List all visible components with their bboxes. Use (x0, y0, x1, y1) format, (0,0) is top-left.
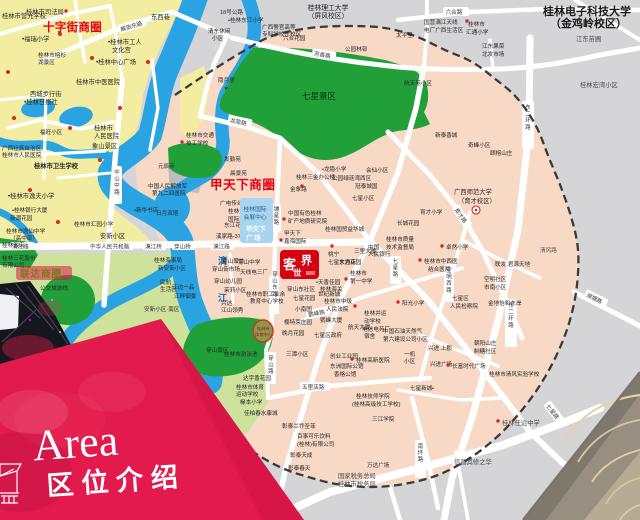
svg-text:达宇香花园: 达宇香花园 (243, 374, 271, 382)
svg-text:元辰寺: 元辰寺 (158, 162, 175, 170)
svg-text:•龙隐小学: •龙隐小学 (322, 165, 347, 173)
svg-text:航天苑小区: 航天苑小区 (404, 79, 432, 87)
svg-text:技工学校: 技工学校 (186, 139, 209, 147)
svg-text:桂林市: 桂林市 (350, 269, 367, 277)
svg-text:七星花园: 七星花园 (293, 294, 316, 302)
svg-text:中国石油天然气: 中国石油天然气 (383, 327, 423, 335)
svg-text:制糖社区: 制糖社区 (474, 347, 497, 355)
svg-text:二: 二 (508, 310, 514, 316)
svg-text:桂林市中医医院: 桂林市中医医院 (76, 77, 121, 86)
svg-text:•: • (432, 386, 434, 392)
svg-text:冠泰城国: 冠泰城国 (355, 182, 378, 190)
svg-text:清风路: 清风路 (540, 246, 557, 254)
svg-text:人民检察院: 人民检察院 (450, 302, 478, 310)
svg-text:西城步行街: 西城步行街 (30, 89, 62, 98)
svg-text:甲天下: 甲天下 (246, 225, 266, 233)
svg-text:江东苗圃: 江东苗圃 (576, 34, 601, 43)
svg-text:奇峰小区: 奇峰小区 (468, 141, 491, 149)
svg-text:鹦峰大厦: 鹦峰大厦 (320, 316, 343, 324)
svg-text:结合医院: 结合医院 (428, 265, 451, 273)
svg-text:七星区政府: 七星区政府 (314, 331, 342, 339)
svg-text:穿: 穿 (268, 354, 273, 362)
svg-text:桂林饭店: 桂林饭店 (2, 241, 25, 249)
svg-text:桂林市: 桂林市 (94, 123, 113, 132)
svg-text:穿山幼儿园: 穿山幼儿园 (214, 277, 242, 285)
svg-text:甲天下商圈: 甲天下商圈 (210, 177, 276, 192)
svg-text:路: 路 (446, 286, 452, 294)
svg-text:七星小区: 七星小区 (352, 194, 375, 202)
svg-text:香格公馆: 香格公馆 (334, 370, 357, 378)
svg-text:路: 路 (274, 218, 280, 226)
svg-text:七星新城: 七星新城 (410, 384, 433, 392)
svg-text:文化宫: 文化宫 (112, 45, 131, 54)
svg-text:五里店路: 五里店路 (302, 383, 325, 391)
svg-text:小区: 小区 (404, 357, 416, 365)
svg-text:桂林市: 桂林市 (468, 20, 485, 28)
svg-text:动学校: 动学校 (364, 317, 381, 325)
svg-text:万达广场: 万达广场 (367, 461, 390, 469)
svg-text:中国人民解放军: 中国人民解放军 (148, 182, 188, 190)
svg-text:桂林并运: 桂林并运 (364, 309, 387, 317)
svg-text:汇通小学: 汇通小学 (466, 28, 489, 36)
svg-text:颐榕山庄: 颐榕山庄 (490, 149, 513, 157)
svg-text:穿山街市场: 穿山街市场 (212, 265, 240, 273)
svg-text:空明社区: 空明社区 (484, 275, 507, 283)
svg-text:长城花园: 长城花园 (397, 219, 420, 227)
svg-text:六合花园: 六合花园 (283, 34, 306, 42)
svg-text:环: 环 (508, 315, 514, 322)
svg-text:信昌其修之华: 信昌其修之华 (454, 457, 492, 466)
svg-text:•桂林市逸夫小学: •桂林市逸夫小学 (8, 191, 54, 200)
svg-text:桂林市营光学校: 桂林市营光学校 (2, 11, 47, 20)
svg-text:桂林市中西医: 桂林市中西医 (424, 257, 458, 265)
svg-text:民航: 民航 (160, 278, 172, 286)
svg-text:鑫海国际: 鑫海国际 (284, 237, 307, 245)
svg-text:桂林市税务局: 桂林市税务局 (338, 479, 376, 488)
svg-text:七星景区: 七星景区 (302, 91, 337, 101)
svg-text:隐月居: 隐月居 (218, 76, 235, 84)
svg-text:山: 山 (114, 175, 119, 183)
svg-text:山: 山 (268, 361, 273, 369)
svg-text:人民法院: 人民法院 (326, 305, 349, 313)
svg-text:清东休闲: 清东休闲 (208, 27, 231, 35)
svg-text:山: 山 (272, 277, 277, 285)
svg-text:桂林市逸仙中学: 桂林市逸仙中学 (6, 227, 46, 235)
svg-text:（育才校区）: （育才校区） (458, 196, 496, 205)
svg-text:安新小区·南区: 安新小区·南区 (144, 305, 180, 313)
svg-text:桂林市卫生学校: 桂林市卫生学校 (33, 161, 79, 170)
svg-text:明: 明 (446, 274, 451, 281)
svg-text:（金鸡岭校区）: （金鸡岭校区） (550, 16, 627, 30)
svg-text:星: 星 (274, 213, 280, 220)
svg-text:路: 路 (525, 123, 531, 131)
svg-text:安新小区: 安新小区 (100, 231, 125, 240)
svg-text:世纪新城: 世纪新城 (318, 290, 341, 298)
svg-text:环: 环 (418, 450, 424, 457)
svg-text:路: 路 (508, 321, 514, 329)
svg-text:中国有色桂林: 中国有色桂林 (288, 209, 322, 217)
svg-text:桂林市体育: 桂林市体育 (236, 383, 264, 391)
svg-text:桂林市人民医院: 桂林市人民医院 (2, 151, 42, 159)
svg-text:有限公司: 有限公司 (2, 261, 24, 269)
svg-text:联达商圈: 联达商圈 (20, 268, 62, 280)
svg-text:(桂林高级技工学校): (桂林高级技工学校) (352, 400, 401, 408)
svg-text:•桂林中心广场: •桂林中心广场 (96, 57, 136, 66)
svg-text:三江学院: 三江学院 (372, 415, 395, 423)
svg-text:穿: 穿 (272, 270, 277, 278)
svg-text:兴达: 兴达 (221, 299, 233, 307)
svg-text:界: 界 (301, 254, 312, 267)
svg-text:路: 路 (393, 270, 399, 278)
svg-text:桂林市职工业余: 桂林市职工业余 (246, 290, 286, 298)
svg-text:兴进.上郡: 兴进.上郡 (428, 344, 452, 352)
svg-text:桂林电子科技大学: 桂林电子科技大学 (542, 4, 631, 18)
svg-text:湖景区: 湖景区 (38, 58, 55, 66)
svg-text:日月双塔: 日月双塔 (156, 209, 179, 217)
svg-text:阳光小学: 阳光小学 (402, 299, 425, 307)
svg-text:新潮花园: 新潮花园 (10, 214, 33, 222)
svg-text:桂林市中级: 桂林市中级 (324, 297, 352, 305)
svg-text:第九二四医院: 第九二四医院 (152, 189, 186, 197)
svg-text:联发.君源天地: 联发.君源天地 (495, 260, 531, 268)
svg-text:西: 西 (446, 280, 452, 287)
svg-text:第六建设公司小区: 第六建设公司小区 (383, 335, 428, 343)
svg-text:公园林邨: 公园林邨 (345, 45, 368, 53)
svg-text:漓江桥: 漓江桥 (145, 243, 162, 251)
svg-text:七星区: 七星区 (452, 294, 469, 302)
svg-text:中: 中 (114, 168, 119, 176)
svg-text:•福瑞小学: •福瑞小学 (22, 34, 49, 43)
svg-text:七: 七 (393, 257, 399, 265)
svg-text:桂林理工大学: 桂林理工大学 (308, 3, 349, 12)
svg-text:路: 路 (418, 455, 424, 463)
svg-text:技术监督局: 技术监督局 (386, 243, 414, 251)
svg-text:•桂林日报社: •桂林日报社 (24, 97, 58, 106)
svg-text:桂林任远中学: 桂林任远中学 (502, 418, 540, 427)
svg-text:公交旅游线: 公交旅游线 (40, 284, 68, 292)
svg-text:晚月花园: 晚月花园 (282, 329, 305, 337)
svg-text:人民医院: 人民医院 (94, 131, 120, 140)
svg-text:桂林国贸益华城: 桂林国贸益华城 (325, 225, 365, 233)
svg-text:桂林海事局: 桂林海事局 (154, 256, 182, 264)
svg-text:金象路: 金象路 (290, 185, 307, 193)
svg-text:七星大酒店: 七星大酒店 (328, 258, 356, 266)
svg-text:•桂林市工人: •桂林市工人 (108, 37, 142, 46)
svg-text:国营漓江天线: 国营漓江天线 (424, 18, 458, 26)
svg-text:Area: Area (31, 416, 120, 471)
svg-text:北发市场: 北发市场 (482, 50, 505, 58)
svg-text:桂林市游泳池: 桂林市游泳池 (224, 350, 258, 358)
svg-text:•桂林银行大厦: •桂林银行大厦 (12, 206, 48, 214)
svg-text:育才小学: 育才小学 (420, 208, 443, 216)
svg-text:江东果菜: 江东果菜 (482, 42, 505, 50)
svg-text:桂林宏湾小区: 桂林宏湾小区 (580, 80, 618, 89)
svg-text:小南国: 小南国 (295, 305, 312, 313)
svg-text:会展中心: 会展中心 (244, 213, 267, 221)
svg-text:•桂林东江小学: •桂林东江小学 (228, 16, 264, 24)
svg-text:桂林市榕杉: 桂林市榕杉 (38, 51, 66, 59)
svg-text:世: 世 (293, 268, 302, 278)
svg-text:漓江路: 漓江路 (213, 243, 230, 251)
svg-text:三潭小区: 三潭小区 (286, 350, 309, 358)
svg-text:中: 中 (114, 181, 119, 189)
svg-text:彰泰天成: 彰泰天成 (290, 451, 313, 459)
svg-text:教育中心学校: 教育中心学校 (250, 297, 284, 305)
svg-text:桂林高新医院: 桂林高新医院 (356, 356, 390, 364)
svg-text:广 场: 广 场 (246, 233, 261, 242)
svg-text:矿产地质研究院: 矿产地质研究院 (288, 217, 328, 225)
svg-text:•天香佳园: •天香佳园 (316, 278, 341, 286)
svg-text:六合路: 六合路 (446, 8, 463, 16)
svg-text:江边一品: 江边一品 (172, 283, 195, 291)
svg-text:东西巷: 东西巷 (151, 12, 171, 21)
svg-text:桂林市清风实验学校: 桂林市清风实验学校 (489, 370, 540, 378)
svg-text:彰泰兰乔圣菲: 彰泰兰乔圣菲 (282, 422, 316, 430)
svg-text:创业工业园: 创业工业园 (330, 352, 358, 360)
svg-text:桂林国际: 桂林国际 (244, 205, 267, 213)
svg-text:发勤苑: 发勤苑 (224, 155, 241, 163)
svg-text:广西警官高等: 广西警官高等 (262, 23, 296, 31)
svg-text:朝阳山庄: 朝阳山庄 (474, 339, 497, 347)
svg-text:一机: 一机 (404, 350, 416, 358)
svg-text:宿舍: 宿舍 (364, 332, 376, 340)
svg-text:体育中心: 体育中心 (255, 331, 273, 338)
svg-text:长富时代广场: 长富时代广场 (452, 362, 486, 370)
svg-text:会仙小区: 会仙小区 (366, 166, 389, 174)
svg-text:星: 星 (393, 265, 399, 272)
svg-text:穿山翠竹: 穿山翠竹 (222, 257, 245, 265)
svg-text:中国: 中国 (368, 243, 380, 251)
svg-text:市南小区: 市南小区 (484, 283, 507, 291)
svg-text:桂林市汇园小学: 桂林市汇园小学 (74, 220, 114, 228)
svg-text:晨景苑: 晨景苑 (230, 169, 247, 177)
svg-text:铺: 铺 (274, 205, 280, 213)
svg-text:第一中学: 第一中学 (350, 277, 373, 285)
svg-text:18号公路: 18号公路 (220, 8, 243, 16)
svg-text:天线电三厂: 天线电三厂 (240, 268, 268, 276)
svg-text:福旺小区: 福旺小区 (40, 128, 63, 136)
svg-text:茉莉小区: 茉莉小区 (224, 286, 247, 294)
svg-text:南: 南 (418, 442, 424, 450)
svg-text:桃宁: 桃宁 (328, 250, 340, 258)
svg-text:运动学校: 运动学校 (236, 390, 259, 398)
svg-text:广电传台: 广电传台 (220, 199, 243, 207)
svg-text:桂林技师学院: 桂林技师学院 (356, 392, 390, 400)
svg-text:（屏风校区）: （屏风校区） (308, 11, 349, 20)
svg-text:路: 路 (114, 188, 120, 196)
svg-text:公园绿涟湾西区: 公园绿涟湾西区 (332, 174, 372, 182)
svg-text:江山领秀: 江山领秀 (221, 306, 244, 314)
svg-text:穿山桥: 穿山桥 (174, 243, 191, 251)
svg-text:电厂广西生活区: 电厂广西生活区 (424, 26, 464, 34)
svg-text:象山景区: 象山景区 (92, 141, 117, 150)
svg-text:广西师范大学: 广西师范大学 (454, 187, 492, 196)
svg-text:路: 路 (268, 367, 274, 375)
svg-text:卓然小学: 卓然小学 (446, 243, 469, 251)
svg-text:穿山景区: 穿山景区 (206, 346, 229, 354)
svg-text:东: 东 (272, 283, 278, 291)
svg-text:广西壮族自治区: 广西壮族自治区 (2, 144, 42, 152)
svg-text:桂林市质量: 桂林市质量 (386, 235, 414, 243)
svg-text:彰泰春天: 彰泰春天 (288, 464, 311, 472)
svg-text:(桂林)有限公司: (桂林)有限公司 (297, 440, 334, 448)
svg-text:樱特莱庄园: 樱特莱庄园 (284, 318, 312, 326)
svg-text:新安街小区: 新安街小区 (158, 264, 186, 272)
svg-text:中华人民共和路: 中华人民共和路 (90, 243, 130, 251)
svg-text:桂林市交通: 桂林市交通 (186, 131, 214, 139)
svg-text:桂林三花股份: 桂林三花股份 (2, 254, 36, 262)
svg-text:十字街商圈: 十字街商圈 (43, 20, 102, 34)
svg-text:国家税务总局: 国家税务总局 (338, 471, 376, 480)
svg-text:百事可乐饮料: 百事可乐饮料 (297, 432, 331, 440)
svg-text:新泰香城: 新泰香城 (435, 131, 458, 139)
svg-text:穿山东社区: 穿山东社区 (287, 285, 315, 293)
svg-text:金地怡和东岸: 金地怡和东岸 (488, 299, 522, 307)
svg-text:江畔御景: 江畔御景 (174, 292, 197, 300)
svg-text:桂林市: 桂林市 (257, 325, 270, 332)
svg-text:（高中部）: （高中部） (10, 234, 38, 242)
svg-text:甲天下: 甲天下 (284, 230, 301, 237)
svg-text:佳柏春水康城: 佳柏春水康城 (244, 409, 278, 417)
svg-text:人民银行: 人民银行 (368, 250, 391, 258)
svg-text:椽本小学: 椽本小学 (240, 398, 263, 406)
svg-text:桂林三金办公楼: 桂林三金办公楼 (296, 173, 336, 181)
svg-text:太平里: 太平里 (396, 31, 413, 39)
svg-text:小区: 小区 (212, 34, 224, 42)
